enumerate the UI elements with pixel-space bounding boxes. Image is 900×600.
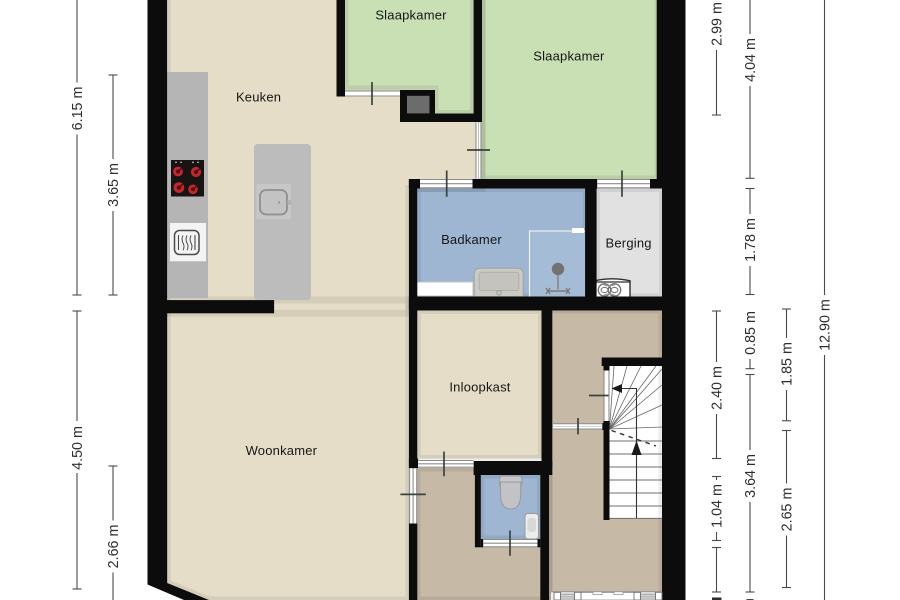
svg-text:3.64 m: 3.64 m [743,454,759,498]
svg-text:0.85 m: 0.85 m [743,311,759,355]
svg-text:4.50 m: 4.50 m [70,426,86,470]
svg-text:4.04 m: 4.04 m [743,38,759,82]
svg-text:2.66 m: 2.66 m [106,525,122,569]
svg-text:2.99 m: 2.99 m [710,2,726,46]
svg-text:Woonkamer: Woonkamer [246,443,318,458]
svg-text:Keuken: Keuken [236,90,281,105]
svg-text:1.85 m: 1.85 m [780,342,796,386]
svg-text:6.15 m: 6.15 m [70,87,86,131]
svg-text:Slaapkamer: Slaapkamer [375,8,447,23]
svg-text:1.04 m: 1.04 m [710,484,726,528]
svg-text:3.65 m: 3.65 m [106,163,122,207]
svg-text:Slaapkamer: Slaapkamer [533,49,605,64]
svg-text:2.40 m: 2.40 m [710,366,726,410]
svg-text:12.90 m: 12.90 m [818,299,834,351]
svg-text:2.65 m: 2.65 m [780,488,796,532]
svg-text:1.78 m: 1.78 m [743,218,759,262]
svg-text:Berging: Berging [605,236,651,251]
svg-text:Inloopkast: Inloopkast [449,380,510,395]
svg-text:Badkamer: Badkamer [441,232,502,247]
